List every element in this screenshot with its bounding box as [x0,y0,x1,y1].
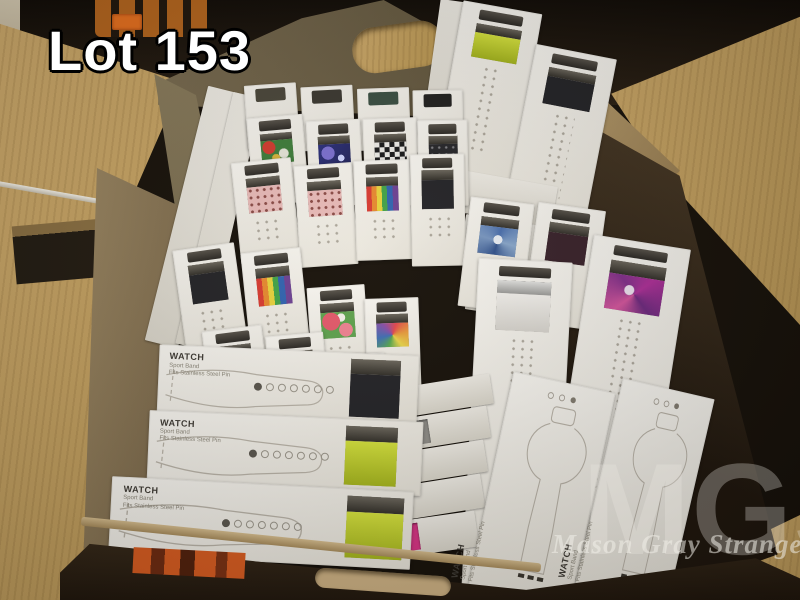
band-window [255,266,294,308]
printed-hole [233,519,241,527]
band-color-swatch [603,272,665,317]
band-color-swatch [189,271,229,304]
band-color-swatch [366,185,399,211]
band-window [495,280,552,333]
auction-lot-photo: WATCHSport BandFits Stainless Steel PinW… [0,0,800,600]
band-lug-icon [259,119,291,132]
printed-holes-pattern [370,216,397,241]
band-color-swatch [246,185,283,214]
band-window [245,176,283,214]
band-lug-icon [255,87,285,102]
printed-hole [309,452,317,460]
band-color-swatch [478,225,518,257]
band-color-swatch [344,441,398,487]
printed-hole [257,520,265,528]
printed-hole [221,519,229,527]
printed-hole [245,520,253,528]
printed-hole [314,385,322,393]
band-lug-icon [186,248,222,263]
watch-band-package [294,162,359,268]
band-lug-icon [320,289,353,301]
band-window [376,314,408,348]
band-lug-icon [278,337,311,350]
band-window [344,425,399,486]
watermark-initials: MGS [582,434,800,584]
band-lug-icon [428,123,456,133]
band-lug-icon [376,301,407,312]
band-lug-icon [499,265,552,278]
band-window [366,176,400,211]
band-window [603,259,667,317]
band-color-swatch [377,322,409,347]
band-color-swatch [422,180,454,209]
band-lug-icon [312,89,342,104]
band-window [188,261,229,304]
band-lug-icon [424,93,452,106]
package-label: WATCHSport BandFits Stainless Steel Pin [159,417,221,446]
printed-holes-pattern [426,214,451,241]
band-lug-icon [366,163,398,174]
band-lug-icon [374,121,405,132]
band-lug-icon [483,203,520,217]
band-lug-icon [318,123,349,135]
printed-hole [302,384,310,392]
package-label: WATCHSport BandFits Stainless Steel Pin [169,351,231,380]
band-adapter [422,170,453,180]
watch-band-package [353,159,412,261]
lot-label: Lot 153 [48,18,251,83]
band-window [307,180,343,217]
band-lug-icon [422,158,452,169]
band-color-swatch [545,232,588,266]
printed-hole [249,449,257,457]
band-lug-icon [307,167,340,179]
printed-hole [278,383,286,391]
band-window [320,302,356,339]
printed-hole [290,384,298,392]
printed-hole [326,385,334,393]
package-label: WATCHSport BandFits Stainless Steel Pin [123,484,186,513]
printed-hole [321,452,329,460]
band-window [478,216,519,258]
band-window [349,359,401,419]
watch-band-package [410,154,466,267]
band-color-swatch [256,275,294,307]
band-color-swatch [349,374,400,419]
printed-hole [261,450,269,458]
band-window [471,23,523,65]
band-lug-icon [244,163,278,176]
band-color-swatch [320,311,355,339]
printed-hole [266,383,274,391]
printed-hole [273,450,281,458]
band-lug-icon [551,209,590,224]
printed-hole [269,521,277,529]
band-lug-icon [368,91,398,105]
printed-hole [293,522,301,530]
printed-holes-pattern [467,65,502,153]
printed-holes-pattern [253,216,283,243]
band-window [422,170,454,209]
band-color-swatch [495,293,551,333]
band-lug-icon [215,330,250,344]
watermark-name: Mason Gray Strange [552,529,800,560]
band-window [542,67,596,112]
printed-holes-pattern [313,221,341,247]
printed-hole [297,451,305,459]
printed-hole [254,382,262,390]
printed-hole [285,451,293,459]
band-window [545,222,589,266]
band-color-swatch [307,189,342,217]
printed-hole [281,522,289,530]
band-lug-icon [254,253,288,266]
